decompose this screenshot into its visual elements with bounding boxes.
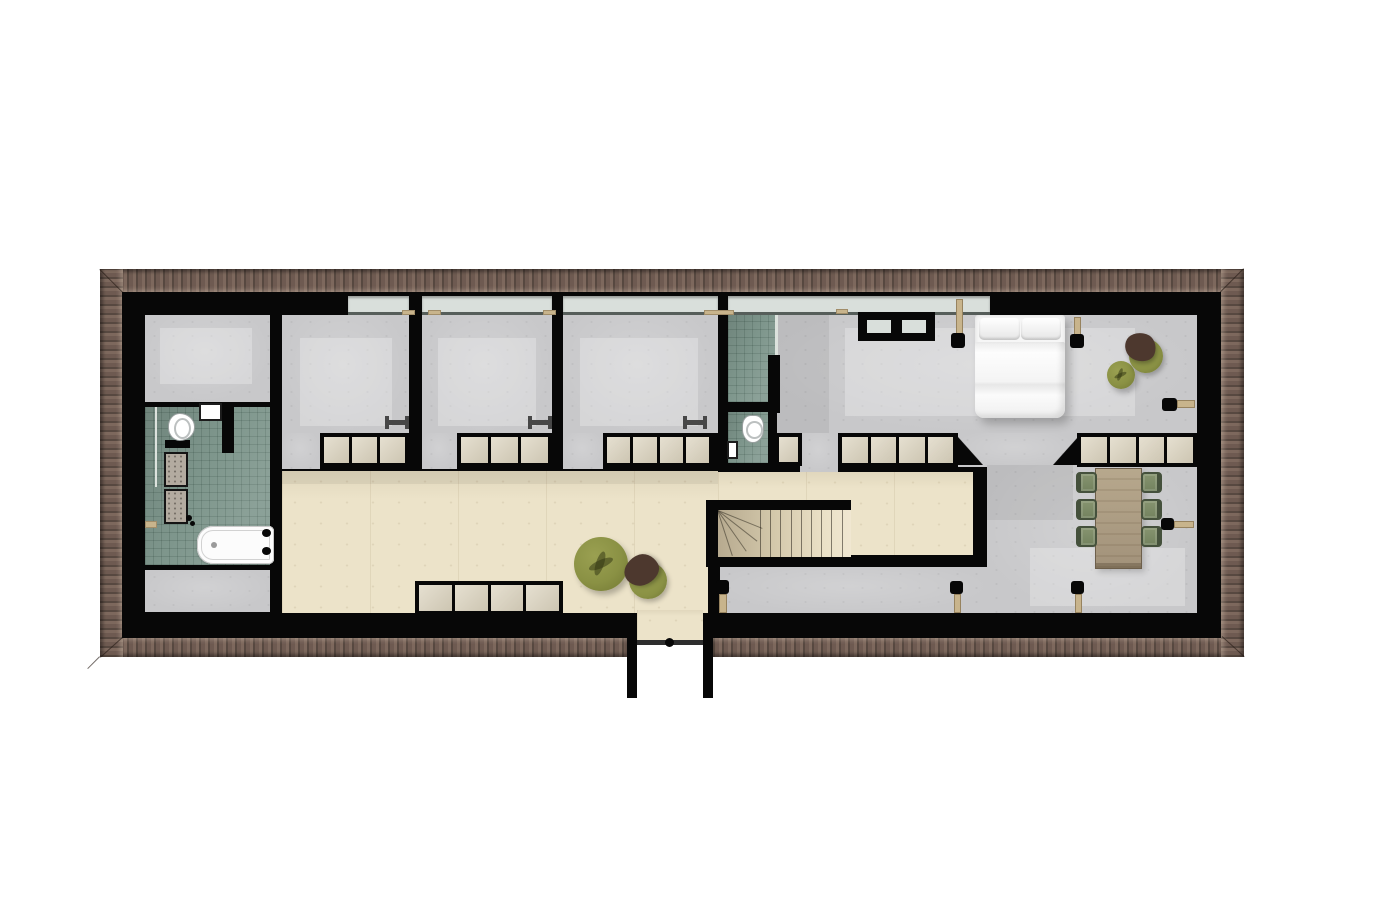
tub-faucet-2 — [262, 547, 271, 555]
bath-glass-screen — [155, 407, 157, 487]
staircase — [718, 510, 851, 557]
stair-tread-line — [842, 510, 843, 557]
skylight-pane — [902, 320, 926, 333]
floor-plan — [0, 0, 1400, 907]
bedroom-3-doorway — [563, 433, 603, 469]
skylight-pane — [867, 320, 891, 333]
dining-chair-3 — [1076, 526, 1097, 547]
closet-door — [491, 437, 518, 463]
closet-master-c — [1077, 433, 1197, 467]
bedroom-2-doorway — [422, 433, 457, 469]
radiator-window-1-cap — [951, 333, 965, 348]
tub-drain — [211, 542, 217, 548]
bath-partition-a — [222, 407, 234, 453]
shelf-tick-left-wall — [145, 521, 157, 528]
closet-door — [779, 437, 798, 462]
storage-bottom-left-floor — [145, 570, 270, 612]
bath-partition-b — [165, 440, 190, 448]
closet-door — [871, 437, 897, 463]
wall-stub-shower — [768, 355, 780, 413]
stair-tread-line — [821, 510, 822, 557]
stair-winder-line — [718, 510, 757, 542]
vanity-sink-2 — [164, 489, 188, 524]
window-band-bedroom-2 — [422, 296, 552, 315]
closet-door — [686, 437, 709, 463]
bench-bedroom-3 — [683, 416, 707, 429]
radiator-corridor-2-cap — [950, 581, 963, 594]
closet-bedroom-3 — [603, 433, 713, 467]
toilet-bowl — [746, 421, 763, 439]
window-handle-4 — [836, 309, 848, 314]
dining-chair-5 — [1141, 499, 1162, 520]
stair-tread-line — [760, 510, 761, 557]
radiator-corridor-1-bar — [719, 594, 727, 613]
radiator-corridor-1-cap — [716, 580, 729, 594]
closet-door — [1139, 437, 1165, 463]
closet-door — [899, 437, 925, 463]
window-band-bedroom-1 — [348, 296, 409, 315]
bed-pillow — [1021, 318, 1062, 340]
shadow-dining-corner — [987, 465, 1073, 520]
closet-door — [660, 437, 683, 463]
bed-duvet — [975, 342, 1065, 418]
closet-door — [1110, 437, 1136, 463]
radiator-window-1-bar — [956, 299, 963, 335]
closet-door — [928, 437, 954, 463]
window-band-bedroom-3 — [563, 296, 718, 315]
closet-door — [491, 585, 524, 611]
closet-door — [633, 437, 656, 463]
closet-door — [521, 437, 548, 463]
closet-door — [380, 437, 405, 463]
bench-bedroom-1 — [385, 416, 409, 429]
closet-door — [352, 437, 377, 463]
stair-tread-line — [791, 510, 792, 557]
stair-wall-top — [706, 500, 851, 510]
closet-bedroom-2 — [457, 433, 552, 467]
closet-bedroom-1 — [320, 433, 409, 467]
balcony-floor — [637, 610, 703, 641]
dining-chair-1 — [1076, 472, 1097, 493]
stair-tread-line — [811, 510, 812, 557]
light-patch-bedroom-2 — [438, 338, 536, 426]
dining-chair-4 — [1141, 472, 1162, 493]
closet-master-a — [775, 433, 802, 466]
double-bed — [975, 315, 1065, 418]
dining-chair-2 — [1076, 499, 1097, 520]
master-doorway — [800, 433, 838, 472]
radiator-dining-cap — [1161, 518, 1174, 530]
closet-door — [1081, 437, 1107, 463]
stair-tread-line — [831, 510, 832, 557]
dining-table — [1095, 468, 1142, 569]
dormer-wall-left — [627, 634, 637, 698]
dining-chair-6 — [1141, 526, 1162, 547]
lounge-chair-master — [1129, 339, 1163, 373]
closet-door — [607, 437, 630, 463]
wall-sink-wc — [727, 441, 738, 459]
closet-door — [455, 585, 488, 611]
stair-tread-line — [780, 510, 781, 557]
closet-door — [461, 437, 488, 463]
radiator-corridor-3-bar — [1075, 594, 1082, 613]
bedroom-1-doorway — [282, 433, 320, 469]
radiator-master-bar — [1177, 400, 1195, 408]
vanity-faucet-2 — [190, 521, 195, 526]
closet-door — [842, 437, 868, 463]
light-patch-bedroom-3 — [580, 338, 698, 426]
closet-hallway — [415, 581, 563, 615]
roof-band-right — [1221, 269, 1244, 657]
toilet-bowl — [174, 418, 191, 439]
tub-faucet-1 — [262, 529, 271, 537]
shadow-master-left — [777, 315, 829, 433]
bench-bedroom-2 — [528, 416, 552, 429]
window-handle-2 — [428, 310, 441, 315]
roof-band-bottom-right — [713, 637, 1244, 657]
roof-band-top — [100, 269, 1244, 293]
window-handle-1 — [402, 310, 415, 315]
stair-tread-line — [801, 510, 802, 557]
skylight — [858, 312, 935, 341]
shower-glass-screen — [775, 315, 778, 355]
radiator-window-2-cap — [1070, 334, 1084, 348]
closet-door — [419, 585, 452, 611]
closet-door — [324, 437, 349, 463]
radiator-dining-bar — [1174, 521, 1194, 528]
closet-door — [1167, 437, 1193, 463]
window-sill-master — [704, 310, 734, 315]
wall-sink-main-bathroom — [199, 403, 222, 421]
light-patch-storage-top — [160, 328, 252, 384]
ottoman-hallway — [574, 537, 628, 591]
balcony-door-handle — [665, 638, 674, 647]
window-handle-3 — [543, 310, 556, 315]
vanity-sink-1 — [164, 452, 188, 487]
light-patch-bedroom-1 — [300, 338, 392, 426]
dormer-wall-right — [703, 634, 713, 698]
roof-band-left — [100, 269, 123, 657]
roof-band-bottom-left — [100, 637, 627, 657]
stair-tread-line — [770, 510, 771, 557]
lounge-chair-hallway — [629, 562, 667, 599]
closet-master-b — [838, 433, 957, 467]
radiator-master-cap — [1162, 398, 1177, 411]
toilet-wc — [742, 415, 764, 443]
passage-chamfer-left — [958, 437, 983, 465]
radiator-corridor-3-cap — [1071, 581, 1084, 594]
shadow-hallway-top — [282, 471, 718, 484]
bed-pillow — [979, 318, 1020, 340]
passage-chamfer-right — [1053, 437, 1078, 465]
eave-line — [87, 656, 100, 669]
radiator-corridor-2-bar — [954, 594, 961, 613]
closet-door — [526, 585, 559, 611]
